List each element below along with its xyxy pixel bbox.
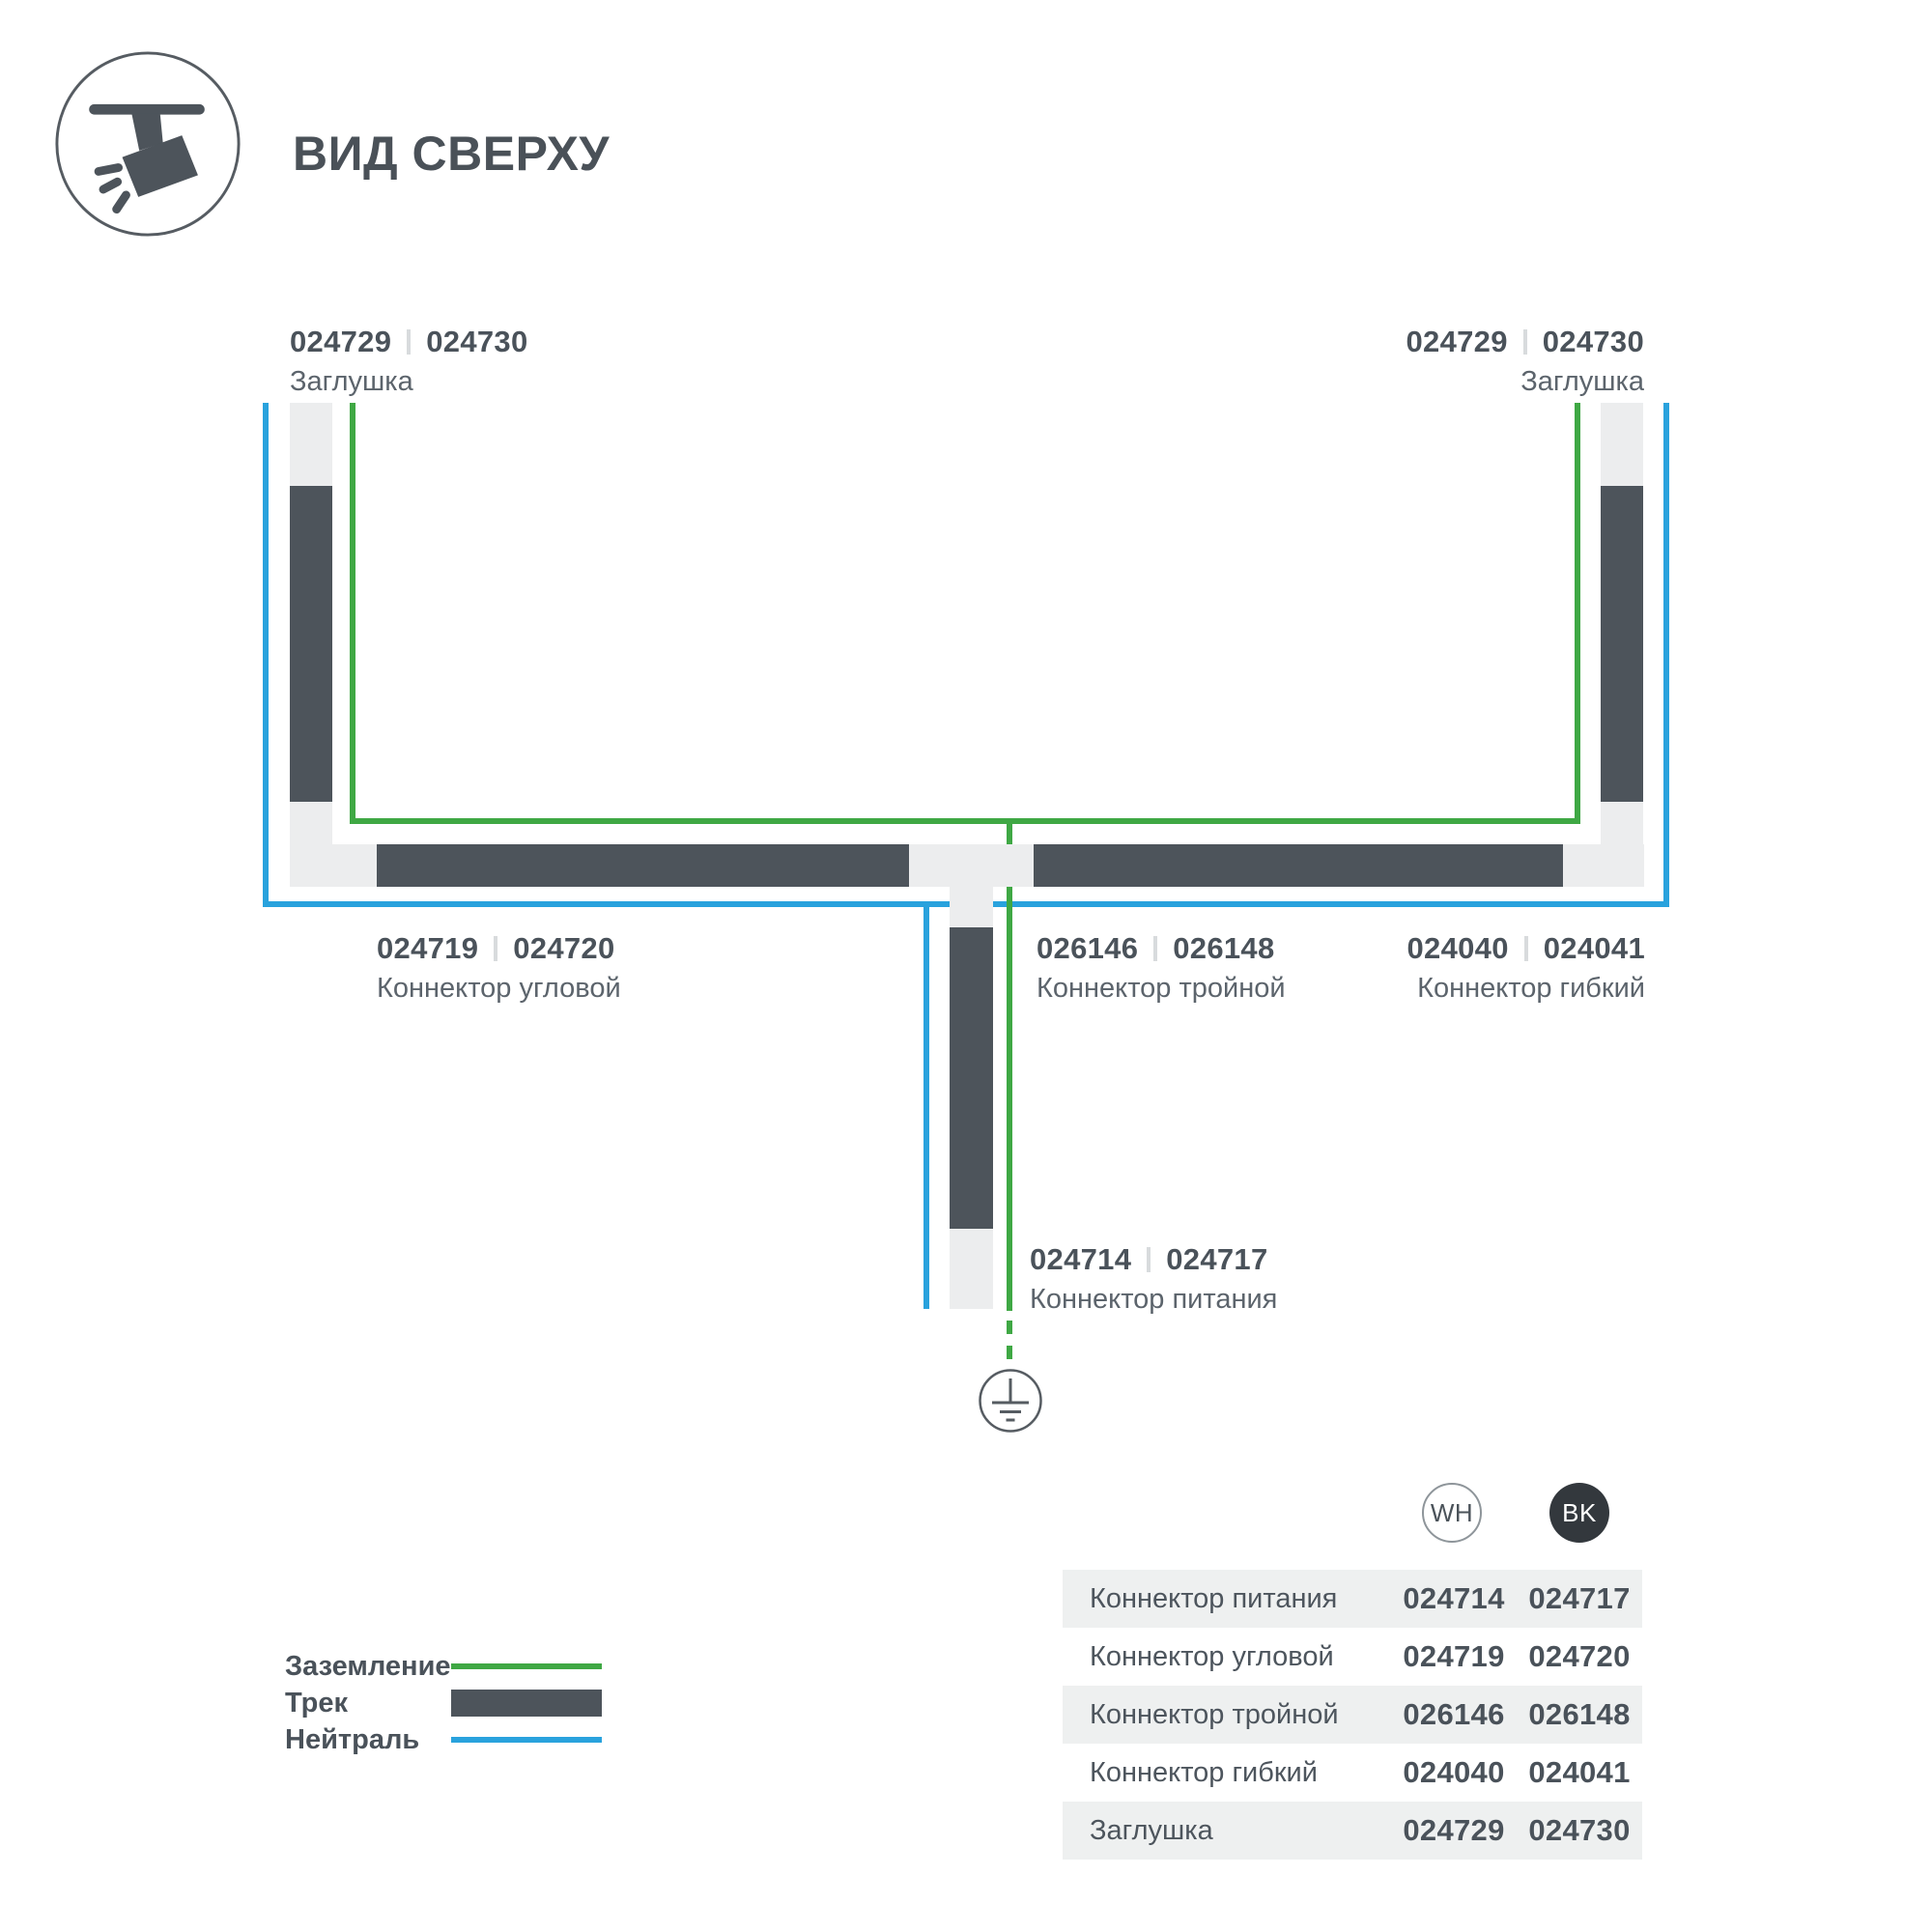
part-codes: 024719 024720 (377, 931, 621, 966)
code-wh: 024714 (1030, 1242, 1131, 1277)
table-row: Коннектор питания 024714 024717 (1063, 1570, 1642, 1628)
label-power-connector: 024714 024717 Коннектор питания (1030, 1242, 1277, 1316)
code-wh: 024729 (1406, 325, 1508, 359)
code-wh: 024040 (1407, 931, 1509, 966)
track-segment-left (290, 486, 332, 802)
row-code-wh: 024040 (1391, 1755, 1517, 1790)
row-code-wh: 024719 (1391, 1639, 1517, 1674)
code-bk: 024720 (513, 931, 614, 966)
page: ВИД СВЕРХУ 024729 024730 Заглушка (0, 0, 1932, 1932)
legend-label: Заземление (285, 1651, 451, 1683)
table-row: Заглушка 024729 024730 (1063, 1802, 1642, 1860)
track-segment-stem (950, 927, 993, 1229)
part-codes: 026146 026148 (1037, 931, 1286, 966)
neutral-line-left (263, 403, 269, 907)
legend-item-ground: Заземление (285, 1648, 613, 1685)
neutral-line-feed (923, 907, 929, 1309)
ground-line-left (350, 403, 355, 824)
row-label: Заглушка (1063, 1815, 1391, 1847)
code-separator (1523, 329, 1527, 355)
row-label: Коннектор питания (1063, 1583, 1391, 1615)
black-variant-badge: BK (1549, 1483, 1609, 1543)
row-code-wh: 024729 (1391, 1813, 1517, 1848)
table-row: Коннектор тройной 026146 026148 (1063, 1686, 1642, 1744)
row-code-bk: 024717 (1517, 1581, 1642, 1616)
neutral-line-swatch (451, 1737, 602, 1743)
part-codes: 024040 024041 (1407, 931, 1646, 966)
code-separator (1147, 1247, 1151, 1272)
part-name: Коннектор угловой (377, 973, 621, 1005)
table-rows: Коннектор питания 024714 024717 Коннекто… (1063, 1570, 1642, 1860)
part-codes: 024714 024717 (1030, 1242, 1277, 1277)
code-bk: 024041 (1544, 931, 1645, 966)
code-separator (407, 329, 411, 355)
neutral-line-right (1663, 403, 1669, 907)
code-wh: 024729 (290, 325, 391, 359)
part-name: Заглушка (1406, 366, 1645, 398)
part-codes: 024729 024730 (1406, 325, 1645, 359)
ground-line-feed (1007, 824, 1012, 1311)
label-endcap-right: 024729 024730 Заглушка (1406, 325, 1645, 398)
code-separator (1524, 936, 1528, 961)
label-endcap-left: 024729 024730 Заглушка (290, 325, 528, 398)
track-spotlight-icon (53, 49, 242, 239)
code-separator (494, 936, 497, 961)
code-wh: 024719 (377, 931, 478, 966)
part-codes: 024729 024730 (290, 325, 528, 359)
label-corner-connector: 024719 024720 Коннектор угловой (377, 931, 621, 1005)
row-label: Коннектор угловой (1063, 1641, 1391, 1673)
code-bk: 024730 (1543, 325, 1644, 359)
page-title: ВИД СВЕРХУ (293, 126, 610, 182)
legend-label: Нейтраль (285, 1724, 451, 1756)
code-bk: 024717 (1166, 1242, 1267, 1277)
part-name: Коннектор питания (1030, 1284, 1277, 1316)
legend-item-track: Трек (285, 1685, 613, 1721)
row-code-bk: 024720 (1517, 1639, 1642, 1674)
icon-track-bar (89, 104, 205, 115)
code-bk: 026148 (1173, 931, 1274, 966)
track-segment-right (1601, 486, 1643, 802)
ground-line-swatch (451, 1663, 602, 1669)
row-label: Коннектор гибкий (1063, 1757, 1391, 1789)
row-code-wh: 024714 (1391, 1581, 1517, 1616)
part-name: Коннектор тройной (1037, 973, 1286, 1005)
table-row: Коннектор гибкий 024040 024041 (1063, 1744, 1642, 1802)
earth-ground-icon (978, 1368, 1043, 1434)
label-triple-connector: 026146 026148 Коннектор тройной (1037, 931, 1286, 1005)
legend: Заземление Трек Нейтраль (285, 1648, 613, 1758)
label-flex-connector: 024040 024041 Коннектор гибкий (1407, 931, 1646, 1005)
row-code-bk: 024041 (1517, 1755, 1642, 1790)
part-name: Коннектор гибкий (1407, 973, 1646, 1005)
part-name: Заглушка (290, 366, 528, 398)
track-segment-bottom-right (1034, 844, 1563, 887)
white-variant-badge: WH (1422, 1483, 1482, 1543)
track-bar-swatch (451, 1690, 602, 1717)
legend-label: Трек (285, 1688, 451, 1719)
row-label: Коннектор тройной (1063, 1699, 1391, 1731)
ground-line-dashed (1007, 1321, 1012, 1371)
codes-table: WH BK Коннектор питания 024714 024717 Ко… (1063, 1483, 1642, 1860)
row-code-bk: 026148 (1517, 1697, 1642, 1732)
row-code-wh: 026146 (1391, 1697, 1517, 1732)
table-row: Коннектор угловой 024719 024720 (1063, 1628, 1642, 1686)
ground-line-middle (350, 818, 1580, 824)
legend-item-neutral: Нейтраль (285, 1721, 613, 1758)
ground-line-right (1575, 403, 1580, 824)
code-bk: 024730 (426, 325, 527, 359)
row-code-bk: 024730 (1517, 1813, 1642, 1848)
code-wh: 026146 (1037, 931, 1138, 966)
code-separator (1153, 936, 1157, 961)
track-segment-bottom-left (377, 844, 909, 887)
